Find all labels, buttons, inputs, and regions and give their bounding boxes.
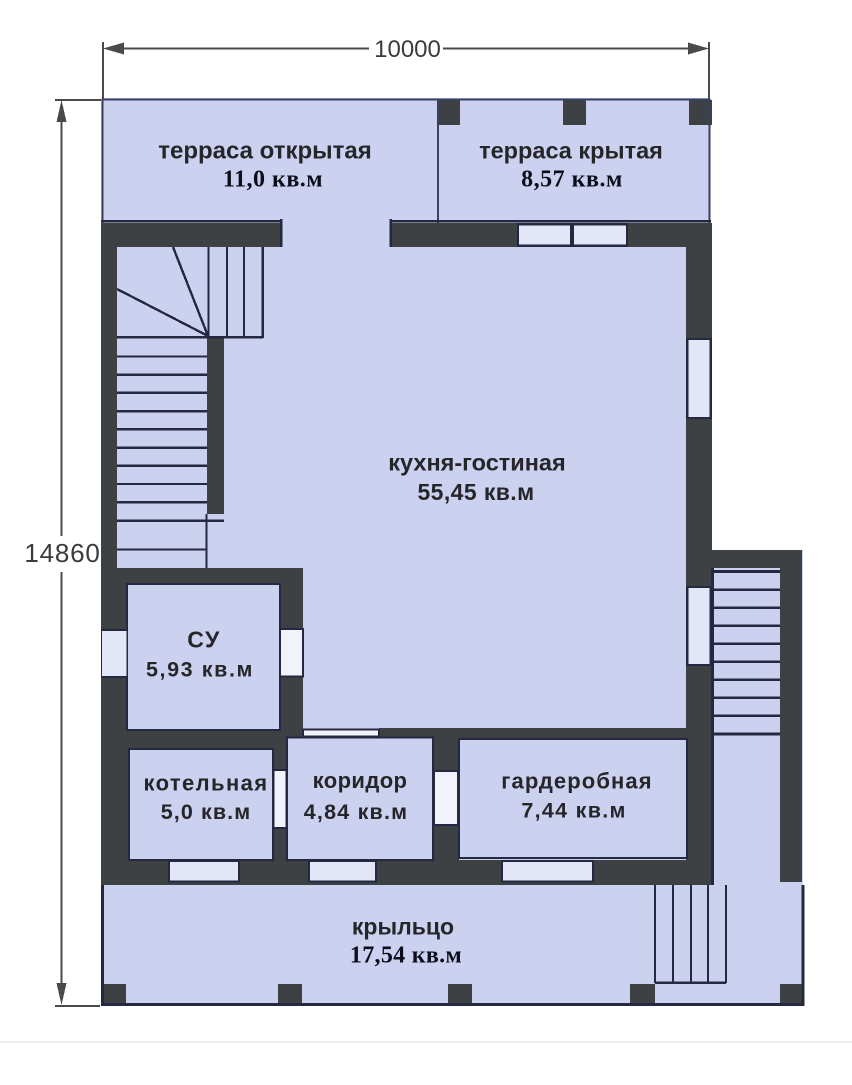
svg-text:терраса крытая: терраса крытая <box>479 138 663 164</box>
svg-text:терраса открытая: терраса открытая <box>158 138 372 165</box>
svg-text:5,0 кв.м: 5,0 кв.м <box>161 800 252 824</box>
svg-text:8,57 кв.м: 8,57 кв.м <box>521 167 623 193</box>
svg-text:СУ: СУ <box>187 627 221 653</box>
svg-text:4,84 кв.м: 4,84 кв.м <box>304 800 408 824</box>
svg-text:крыльцо: крыльцо <box>352 914 454 940</box>
svg-text:гардеробная: гардеробная <box>501 769 652 794</box>
svg-text:10000: 10000 <box>374 36 441 63</box>
svg-text:кухня-гостиная: кухня-гостиная <box>388 450 565 476</box>
svg-text:7,44 кв.м: 7,44 кв.м <box>521 799 626 823</box>
svg-text:55,45 кв.м: 55,45 кв.м <box>417 479 534 505</box>
svg-text:14860: 14860 <box>24 538 100 568</box>
svg-text:5,93 кв.м: 5,93 кв.м <box>146 658 254 682</box>
svg-text:17,54 кв.м: 17,54 кв.м <box>350 943 462 969</box>
svg-text:11,0 кв.м: 11,0 кв.м <box>223 167 323 193</box>
svg-text:котельная: котельная <box>143 771 268 796</box>
svg-text:коридор: коридор <box>313 768 408 793</box>
